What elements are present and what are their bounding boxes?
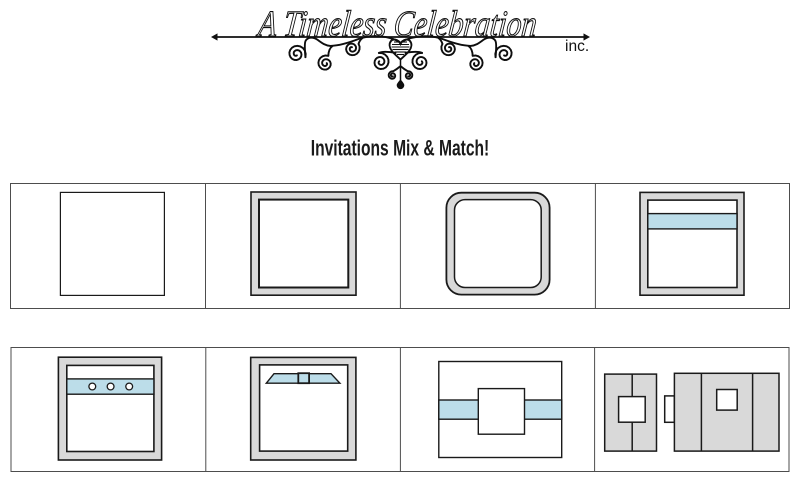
svg-text:Invitations Mix & Match!: Invitations Mix & Match! [311, 136, 490, 161]
svg-text:A Timeless Celebration: A Timeless Celebration [254, 4, 539, 45]
svg-text:inc.: inc. [565, 38, 589, 55]
